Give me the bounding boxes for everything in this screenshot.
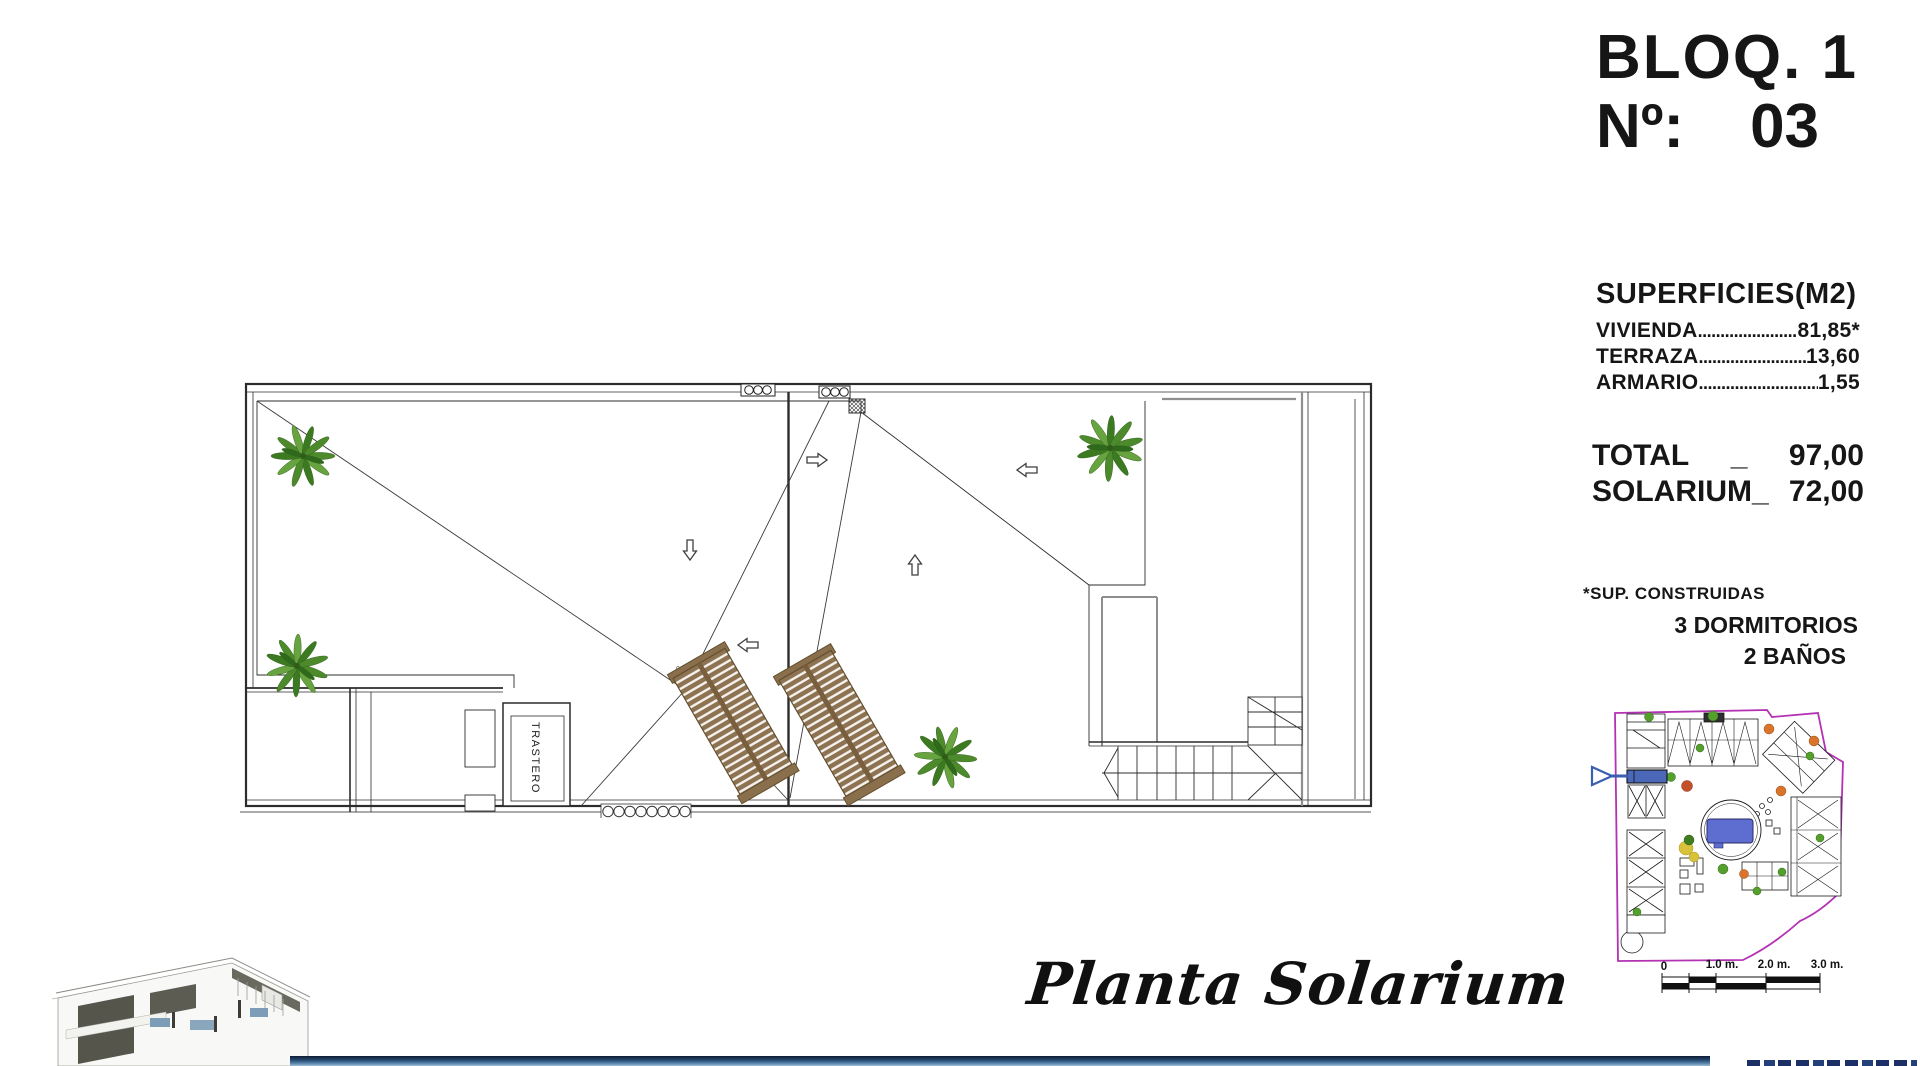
scale-label-0: 0 [1661, 961, 1667, 973]
arrow-left-icon [1017, 464, 1037, 477]
interior-walls [257, 392, 1355, 806]
dot-leader: ........................................ [1698, 344, 1806, 370]
scale-label-2: 2.0 m. [1758, 959, 1791, 971]
palm-tree [900, 712, 990, 801]
palm-tree [256, 625, 338, 706]
surface-value: 13,60 [1806, 344, 1860, 370]
highlighted-unit [1627, 770, 1667, 783]
palm-tree [271, 424, 335, 487]
plan-caption: Planta Solarium [1024, 950, 1501, 1018]
site-pool-plaza [1701, 800, 1761, 860]
footer-bar [290, 1056, 1710, 1066]
storage-room: TRASTERO [503, 703, 570, 806]
building-render [40, 950, 310, 1066]
vent-top-right [819, 386, 850, 398]
total-separator: _ [1731, 438, 1748, 474]
totals-block: TOTAL _ 97,00 SOLARIUM_ 72,00 [1592, 438, 1864, 510]
surface-value: 1,55 [1818, 370, 1860, 396]
arrow-left2-icon [738, 639, 758, 652]
solarium-row: SOLARIUM_ 72,00 [1592, 474, 1864, 510]
surface-row-terraza: TERRAZA ................................… [1596, 344, 1860, 370]
vent-top-left [741, 384, 775, 396]
surface-value: 81,85* [1797, 318, 1860, 344]
bathrooms-label: 2 BAÑOS [1596, 641, 1858, 672]
total-row: TOTAL _ 97,00 [1592, 438, 1864, 474]
dot-leader: ........................................ [1698, 370, 1817, 396]
surfaces-footnote: *SUP. CONSTRUIDAS [1583, 584, 1765, 604]
scale-label-3: 3.0 m. [1811, 959, 1844, 971]
arrow-up-icon [909, 555, 922, 575]
plan-sheet: TRASTERO [0, 0, 1920, 1066]
surfaces-heading: SUPERFICIES(M2) [1596, 278, 1860, 311]
title-block: BLOQ. 1 Nº: 03 [1596, 24, 1876, 162]
features-block: 3 DORMITORIOS 2 BAÑOS [1596, 610, 1858, 672]
site-plan-minimap: 0 1.0 m. 2.0 m. 3.0 m. [1582, 698, 1882, 1000]
bottom-rooms [246, 688, 503, 812]
site-pool [1707, 819, 1753, 843]
stair-area [849, 399, 1302, 800]
unit-number: 03 [1750, 92, 1819, 162]
block-title: BLOQ. 1 [1596, 24, 1876, 92]
palm-tree [1069, 407, 1151, 488]
surface-label: VIVIENDA [1596, 318, 1698, 344]
scale-bar: 0 1.0 m. 2.0 m. 3.0 m. [1661, 959, 1844, 993]
scale-label-1: 1.0 m. [1706, 959, 1739, 971]
unit-label: Nº: [1596, 92, 1684, 162]
surface-label: ARMARIO [1596, 370, 1698, 396]
sun-lounger [667, 642, 799, 804]
surface-label: TERRAZA [1596, 344, 1698, 370]
site-tree-outline [1621, 931, 1643, 953]
surface-row-vivienda: VIVIENDA ...............................… [1596, 318, 1860, 344]
vent-bottom [601, 804, 691, 818]
footer-logo-cutoff [1747, 1060, 1917, 1066]
solarium-label: SOLARIUM_ [1592, 474, 1769, 510]
arrow-right-icon [807, 454, 827, 467]
total-value: 97,00 [1789, 438, 1864, 474]
dot-leader: ........................................ [1698, 318, 1798, 344]
bedrooms-label: 3 DORMITORIOS [1596, 610, 1858, 641]
surface-row-armario: ARMARIO ................................… [1596, 370, 1860, 396]
surfaces-table: SUPERFICIES(M2) VIVIENDA ...............… [1596, 278, 1860, 396]
total-label: TOTAL [1592, 438, 1689, 474]
arrow-down-icon [684, 540, 697, 560]
solarium-value: 72,00 [1789, 474, 1864, 510]
storage-label: TRASTERO [529, 722, 541, 794]
floor-plan-drawing: TRASTERO [238, 378, 1378, 818]
